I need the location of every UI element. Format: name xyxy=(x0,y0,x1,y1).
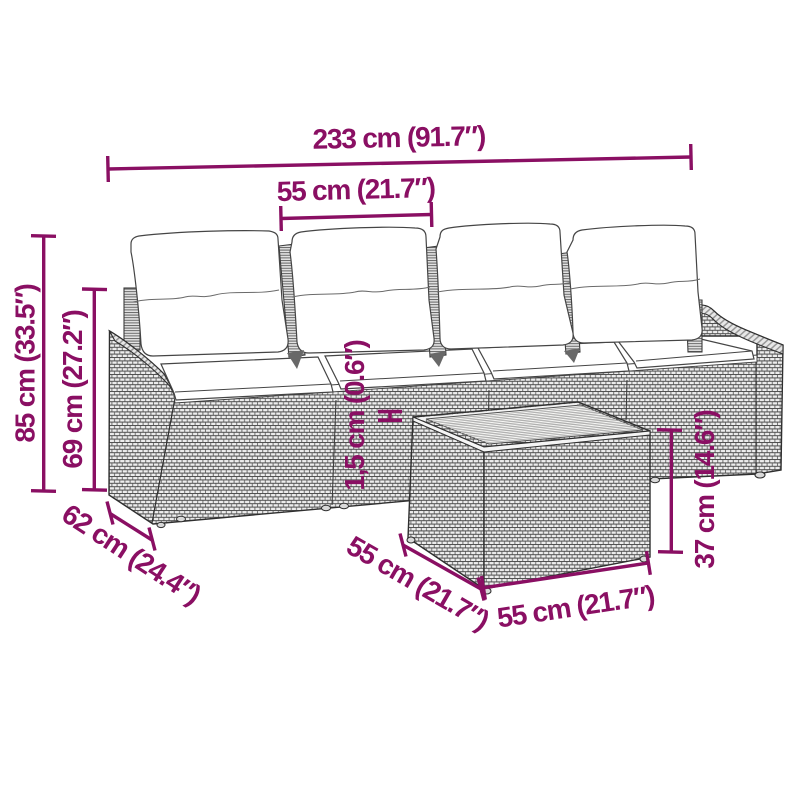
svg-text:37 cm (14.6″): 37 cm (14.6″) xyxy=(689,410,720,568)
svg-text:85 cm (33.5″): 85 cm (33.5″) xyxy=(10,284,41,442)
svg-text:69 cm (27.2″): 69 cm (27.2″) xyxy=(57,310,88,468)
svg-text:233 cm (91.7″): 233 cm (91.7″) xyxy=(312,120,485,155)
svg-text:1,5 cm (0.6″): 1,5 cm (0.6″) xyxy=(339,340,370,490)
svg-text:55 cm (21.7″): 55 cm (21.7″) xyxy=(276,172,435,207)
